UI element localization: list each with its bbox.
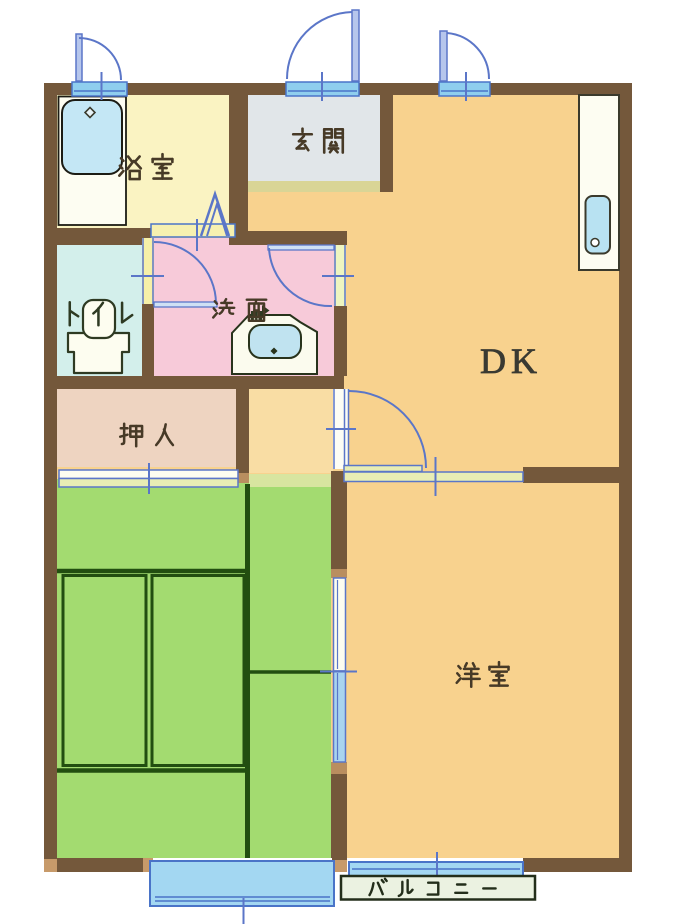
svg-text:DK: DK xyxy=(480,341,542,381)
